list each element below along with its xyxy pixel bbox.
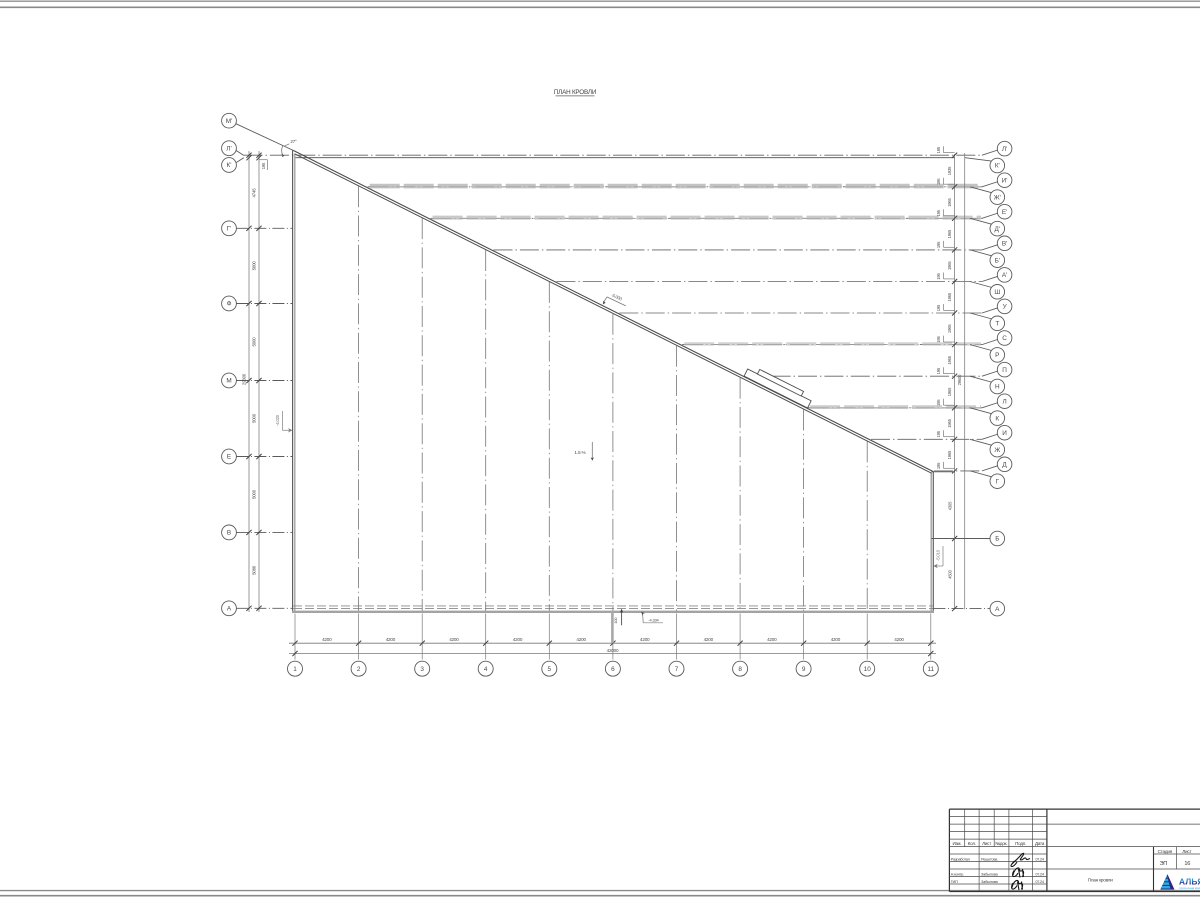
svg-text:Р: Р xyxy=(995,352,999,359)
svg-text:195: 195 xyxy=(936,367,941,374)
svg-text:07.24: 07.24 xyxy=(1035,872,1044,876)
svg-text:2: 2 xyxy=(357,666,361,673)
svg-text:Забылова: Забылова xyxy=(981,879,999,884)
svg-text:Забылова: Забылова xyxy=(981,871,999,876)
svg-text:195: 195 xyxy=(936,430,941,437)
svg-text:Л: Л xyxy=(1002,398,1006,405)
svg-text:4: 4 xyxy=(484,666,488,673)
svg-text:С: С xyxy=(1002,335,1007,342)
svg-text:4200: 4200 xyxy=(640,637,650,642)
svg-text:Подп.: Подп. xyxy=(1015,841,1026,846)
svg-text:9: 9 xyxy=(802,666,806,673)
svg-text:4200: 4200 xyxy=(831,637,841,642)
svg-text:5080: 5080 xyxy=(252,565,257,575)
svg-text:Л': Л' xyxy=(226,145,231,152)
svg-text:195: 195 xyxy=(936,399,941,406)
svg-text:4200: 4200 xyxy=(322,637,332,642)
svg-text:Н.контр.: Н.контр. xyxy=(951,871,964,876)
svg-text:4200: 4200 xyxy=(513,637,523,642)
svg-text:1965: 1965 xyxy=(947,229,952,238)
svg-text:4200: 4200 xyxy=(767,637,777,642)
svg-text:100: 100 xyxy=(613,617,618,624)
svg-text:1.5 %: 1.5 % xyxy=(574,450,586,456)
svg-text:195: 195 xyxy=(936,336,941,343)
svg-text:Д: Д xyxy=(1002,462,1007,469)
svg-text:195: 195 xyxy=(936,462,941,469)
svg-text:Г': Г' xyxy=(227,226,232,233)
svg-text:Решетова: Решетова xyxy=(981,856,998,861)
svg-text:-5.000: -5.000 xyxy=(611,292,624,302)
svg-text:29600: 29600 xyxy=(957,374,962,386)
svg-text:4500: 4500 xyxy=(948,569,953,578)
svg-text:07.24: 07.24 xyxy=(1035,880,1044,884)
svg-text:195: 195 xyxy=(936,146,941,153)
svg-text:-5.010: -5.010 xyxy=(936,549,941,561)
svg-text:Ш: Ш xyxy=(994,289,1000,296)
svg-text:5000: 5000 xyxy=(252,261,257,271)
svg-text:М: М xyxy=(226,378,231,385)
svg-text:ГИП: ГИП xyxy=(951,879,959,884)
svg-text:К': К' xyxy=(995,163,1000,170)
svg-text:1965: 1965 xyxy=(947,324,952,333)
svg-text:Разработал: Разработал xyxy=(951,856,970,861)
svg-text:ЭП: ЭП xyxy=(1159,861,1167,867)
svg-text:16: 16 xyxy=(1184,861,1190,867)
svg-text:195: 195 xyxy=(936,304,941,311)
svg-text:Б': Б' xyxy=(995,257,1000,264)
svg-text:5000: 5000 xyxy=(252,489,257,499)
svg-text:Т: Т xyxy=(995,321,999,328)
svg-text:М': М' xyxy=(226,118,233,125)
svg-text:-4.334: -4.334 xyxy=(648,617,659,622)
svg-text:195: 195 xyxy=(261,162,266,169)
svg-text:-4.020: -4.020 xyxy=(275,414,280,426)
svg-text:Лист: Лист xyxy=(982,841,991,846)
svg-text:И: И xyxy=(1002,430,1007,437)
svg-text:№док.: №док. xyxy=(995,841,1007,846)
svg-text:5000: 5000 xyxy=(252,413,257,423)
svg-text:4200: 4200 xyxy=(704,637,714,642)
svg-text:В: В xyxy=(227,530,231,537)
svg-text:4200: 4200 xyxy=(894,637,904,642)
svg-text:3: 3 xyxy=(420,666,424,673)
svg-text:Изм.: Изм. xyxy=(952,841,961,846)
svg-text:1965: 1965 xyxy=(947,261,952,270)
svg-text:Лист: Лист xyxy=(1182,849,1192,854)
svg-text:К: К xyxy=(995,415,999,422)
svg-text:1965: 1965 xyxy=(947,355,952,364)
svg-text:Ж: Ж xyxy=(994,447,1000,454)
svg-text:195: 195 xyxy=(936,272,941,279)
svg-text:1965: 1965 xyxy=(947,418,952,427)
svg-text:строительная компания: строительная компания xyxy=(1179,887,1200,890)
svg-text:И': И' xyxy=(1002,177,1008,184)
svg-text:5000: 5000 xyxy=(252,337,257,347)
svg-text:4745: 4745 xyxy=(252,188,257,198)
svg-text:10: 10 xyxy=(864,666,872,673)
svg-text:1: 1 xyxy=(293,666,297,673)
svg-text:29600: 29600 xyxy=(242,373,247,385)
svg-text:8: 8 xyxy=(738,666,742,673)
svg-text:7: 7 xyxy=(675,666,679,673)
svg-text:5: 5 xyxy=(548,666,552,673)
svg-text:1965: 1965 xyxy=(947,197,952,206)
svg-text:195: 195 xyxy=(936,209,941,216)
svg-text:27°: 27° xyxy=(290,139,297,144)
svg-text:11: 11 xyxy=(927,666,934,673)
svg-text:Н: Н xyxy=(995,384,1000,391)
svg-text:1965: 1965 xyxy=(947,387,952,396)
svg-text:Б: Б xyxy=(995,536,999,543)
svg-text:П: П xyxy=(1002,367,1007,374)
svg-text:4305: 4305 xyxy=(948,501,953,510)
svg-text:Ж': Ж' xyxy=(994,194,1001,201)
svg-text:6: 6 xyxy=(611,666,615,673)
svg-text:Стадия: Стадия xyxy=(1158,849,1173,854)
svg-text:Л': Л' xyxy=(1002,146,1007,153)
svg-text:ПЛАН КРОВЛИ: ПЛАН КРОВЛИ xyxy=(554,89,597,96)
svg-text:Дата: Дата xyxy=(1035,841,1045,846)
svg-text:А: А xyxy=(227,606,232,613)
svg-text:План кровли: План кровли xyxy=(1088,877,1113,882)
svg-text:Ф: Ф xyxy=(227,301,232,308)
svg-text:К': К' xyxy=(227,162,232,169)
svg-text:Е: Е xyxy=(227,454,231,461)
svg-text:195: 195 xyxy=(936,178,941,185)
svg-text:07.24: 07.24 xyxy=(1035,857,1044,861)
svg-text:1965: 1965 xyxy=(947,450,952,459)
svg-text:А': А' xyxy=(1002,272,1007,279)
svg-text:4200: 4200 xyxy=(386,637,396,642)
svg-text:А: А xyxy=(995,606,1000,613)
svg-text:1965: 1965 xyxy=(947,292,952,301)
svg-text:Е': Е' xyxy=(1002,209,1007,216)
svg-text:Д': Д' xyxy=(995,226,1001,233)
svg-text:4200: 4200 xyxy=(449,637,459,642)
svg-text:195: 195 xyxy=(936,241,941,248)
svg-text:42000: 42000 xyxy=(607,648,619,653)
svg-text:1935: 1935 xyxy=(947,166,952,175)
svg-text:В': В' xyxy=(1002,241,1007,248)
svg-text:АЛЬЯ: АЛЬЯ xyxy=(1179,876,1200,886)
svg-text:Г: Г xyxy=(996,478,1000,485)
svg-text:4200: 4200 xyxy=(576,637,586,642)
svg-text:Кол.: Кол. xyxy=(968,841,976,846)
